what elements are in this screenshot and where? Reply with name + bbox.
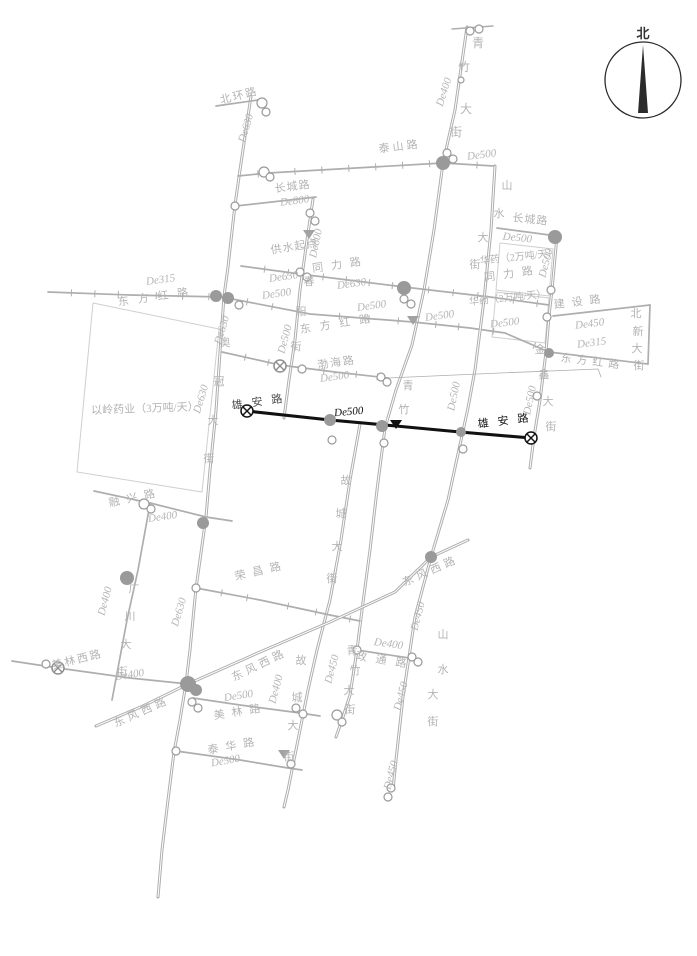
pipe-diameter-label: De500 xyxy=(333,405,365,420)
street-label: 青 xyxy=(403,379,414,392)
street-label: 街 xyxy=(634,358,645,372)
street-label: 东方红路 xyxy=(560,350,625,372)
junction-circle-icon xyxy=(383,378,391,386)
street-label: 广 xyxy=(129,582,140,595)
service-tick xyxy=(458,323,459,330)
pipe-diameter-label: De450 xyxy=(573,316,605,332)
street-label: 故 xyxy=(296,653,307,667)
junction-circle-icon xyxy=(311,217,319,225)
street-label: 鑫 xyxy=(539,367,550,381)
street-label: 泰山路 xyxy=(378,137,421,156)
pipe-diameter-label: De450 xyxy=(322,653,342,686)
pipe-diameter-label: De315 xyxy=(144,272,176,288)
north-label: 北 xyxy=(636,26,649,41)
street-label: 青 xyxy=(347,644,358,657)
junction-circle-icon xyxy=(235,301,243,309)
street-label: 城 xyxy=(336,507,347,520)
pipe-network-canvas: 北环路De630泰山路De500青竹大街De400长城路De800长城路De50… xyxy=(0,0,697,956)
pipe-diameter-label: De315 xyxy=(575,335,607,351)
junction-circle-icon xyxy=(192,584,200,592)
junction-circle-icon xyxy=(306,209,314,217)
junction-circle-icon xyxy=(380,439,388,447)
pipe-diameter-label: De500 xyxy=(222,688,254,705)
street-label: 山 xyxy=(502,179,513,192)
street-label: 阳 xyxy=(296,305,307,318)
service-tick xyxy=(392,282,393,289)
pipe-diameter-label: De630 xyxy=(267,269,299,285)
street-label: 川 xyxy=(125,611,136,623)
junction-circle-icon xyxy=(262,108,270,116)
street-label: 大 xyxy=(332,539,343,553)
junction-circle-icon xyxy=(458,77,464,83)
pipe-diameter-label: De450 xyxy=(391,680,411,713)
junction-dot-icon xyxy=(222,292,234,304)
pipe-segment xyxy=(238,163,494,176)
junction-circle-icon xyxy=(292,704,300,712)
street-label: 大 xyxy=(208,413,219,427)
street-label: 竹 xyxy=(350,663,361,677)
street-label: 青 xyxy=(472,36,484,50)
street-label: 大 xyxy=(288,718,299,732)
street-label: 大 xyxy=(632,341,643,355)
pipe-diameter-label: De630 xyxy=(236,112,256,145)
junction-circle-icon xyxy=(466,27,474,35)
junction-circle-icon xyxy=(257,98,267,108)
street-label: 同力路 xyxy=(483,263,541,284)
street-label: 长城路 xyxy=(512,211,549,228)
junction-dot-icon xyxy=(190,684,202,696)
street-label: 雄安路 xyxy=(231,390,292,412)
junction-circle-icon xyxy=(194,704,202,712)
service-tick xyxy=(398,317,399,324)
street-label: 建设路 xyxy=(553,291,608,311)
street-label: 大 xyxy=(428,687,439,701)
junction-circle-icon xyxy=(543,313,551,321)
street-label: 竹 xyxy=(399,402,410,416)
pipe-diameter-label: De400 xyxy=(434,76,455,109)
street-label: 街 xyxy=(428,714,439,728)
street-label: 街 xyxy=(284,749,295,763)
street-label: 大 xyxy=(478,230,489,244)
street-label: 融兴路 xyxy=(108,486,164,510)
pipe-diameter-label: De500 xyxy=(465,147,497,163)
junction-dot-icon xyxy=(548,230,562,244)
street-label: 美林路 xyxy=(213,700,269,722)
junction-dot-icon xyxy=(544,348,554,358)
junction-dot-icon xyxy=(436,156,450,170)
street-label: 华药（2万吨/天） xyxy=(468,287,547,308)
pipe-segment xyxy=(158,96,251,897)
service-tick xyxy=(247,594,248,601)
street-label: 大 xyxy=(121,637,132,651)
junction-circle-icon xyxy=(231,202,239,210)
street-label: 竹 xyxy=(458,60,470,74)
service-tick xyxy=(369,279,370,286)
pipe-segment xyxy=(388,369,601,378)
street-label: 水 xyxy=(494,207,505,220)
pipe-diameter-label: De500 xyxy=(318,369,350,385)
street-label: 东风西路 xyxy=(112,694,172,730)
street-label: 城 xyxy=(292,691,303,704)
pipe-diameter-label: De630 xyxy=(169,596,189,629)
service-tick xyxy=(453,289,454,296)
street-label: 故 xyxy=(341,473,352,487)
street-label: 政通路 xyxy=(355,648,416,671)
pipe-diameter-label: De500 xyxy=(260,286,292,302)
junction-circle-icon xyxy=(384,793,392,801)
service-tick xyxy=(246,298,247,305)
valve-icon-selected xyxy=(525,432,537,444)
street-label: 街 xyxy=(546,419,557,433)
street-label: 大 xyxy=(344,683,355,697)
pipe-diameter-label: De500 xyxy=(355,298,387,314)
street-label: 荣昌路 xyxy=(233,558,289,583)
service-tick xyxy=(349,616,350,623)
junction-circle-icon xyxy=(400,295,408,303)
junction-dot-icon xyxy=(456,427,466,437)
junction-circle-icon xyxy=(338,718,346,726)
street-label: 街 xyxy=(345,702,356,716)
street-label: 大 xyxy=(460,102,472,116)
street-label: 雄安路 xyxy=(477,409,538,430)
pipe-diameter-label: De500 xyxy=(445,380,463,413)
junction-dot-icon xyxy=(397,281,411,295)
junction-circle-icon xyxy=(299,710,307,718)
street-label: 新 xyxy=(633,324,644,338)
junction-circle-icon xyxy=(172,747,180,755)
junction-dot-icon xyxy=(210,290,222,302)
pipe-diameter-label: De500 xyxy=(423,308,455,324)
street-label: 街 xyxy=(204,451,215,465)
junction-dot-icon xyxy=(425,551,437,563)
junction-circle-icon xyxy=(266,173,274,181)
junction-circle-icon xyxy=(475,25,483,33)
street-label: 渤海路 xyxy=(316,352,357,371)
junction-dot-icon xyxy=(376,420,388,432)
street-label: 同力路 xyxy=(311,254,369,275)
service-tick xyxy=(356,371,357,378)
street-label: 以岭药业（3万吨/天） xyxy=(91,399,199,417)
pipe-segment xyxy=(196,588,360,621)
street-label: 街 xyxy=(327,571,338,585)
pipe-diameter-label: De400 xyxy=(372,636,404,652)
valve-icon xyxy=(274,360,286,372)
service-tick xyxy=(221,589,222,596)
pipe-segment xyxy=(222,352,388,378)
service-tick xyxy=(272,303,273,310)
street-label: 北 xyxy=(631,307,642,320)
street-label: 美林西路 xyxy=(50,646,104,672)
street-label: 山 xyxy=(438,628,449,641)
service-tick xyxy=(264,266,265,273)
junction-circle-icon xyxy=(298,365,306,373)
north-compass: 北 xyxy=(605,26,681,118)
north-needle-icon xyxy=(638,45,648,113)
service-tick xyxy=(428,286,429,293)
street-label: 金 xyxy=(535,342,546,356)
street-label: 长城路 xyxy=(274,178,311,195)
pipe-diameter-label: De450 xyxy=(381,759,401,792)
junction-dot-icon xyxy=(197,517,209,529)
service-tick xyxy=(258,171,259,178)
street-label: 水 xyxy=(438,663,449,676)
pipe-diameter-label: De630 xyxy=(191,383,211,416)
street-label: 东方红路 xyxy=(117,284,198,309)
pipe-network-map-page: 北环路De630泰山路De500青竹大街De400长城路De800长城路De50… xyxy=(0,0,697,956)
junction-circle-icon xyxy=(407,300,415,308)
pipe-diameter-label: De400 xyxy=(95,585,115,618)
street-label: 街 xyxy=(291,339,302,353)
junction-circle-icon xyxy=(547,286,555,294)
junction-circle-icon xyxy=(449,155,457,163)
service-tick xyxy=(323,273,324,280)
pipe-diameter-label: De450 xyxy=(408,600,428,633)
street-label: 春 xyxy=(304,275,315,288)
street-label: 冠 xyxy=(214,375,225,388)
pipe-diameter-label: De500 xyxy=(488,315,520,330)
junction-circle-icon xyxy=(42,660,50,668)
junction-circle-icon xyxy=(459,445,467,453)
pipe-diameter-label: De800 xyxy=(278,193,310,209)
pipe-segment xyxy=(648,305,650,364)
junction-circle-icon xyxy=(328,436,336,444)
pipe-segment xyxy=(12,661,188,684)
street-label: 街 xyxy=(450,125,462,139)
pipe-diameter-label: De400 xyxy=(266,673,286,706)
street-label: 大 xyxy=(543,394,554,408)
